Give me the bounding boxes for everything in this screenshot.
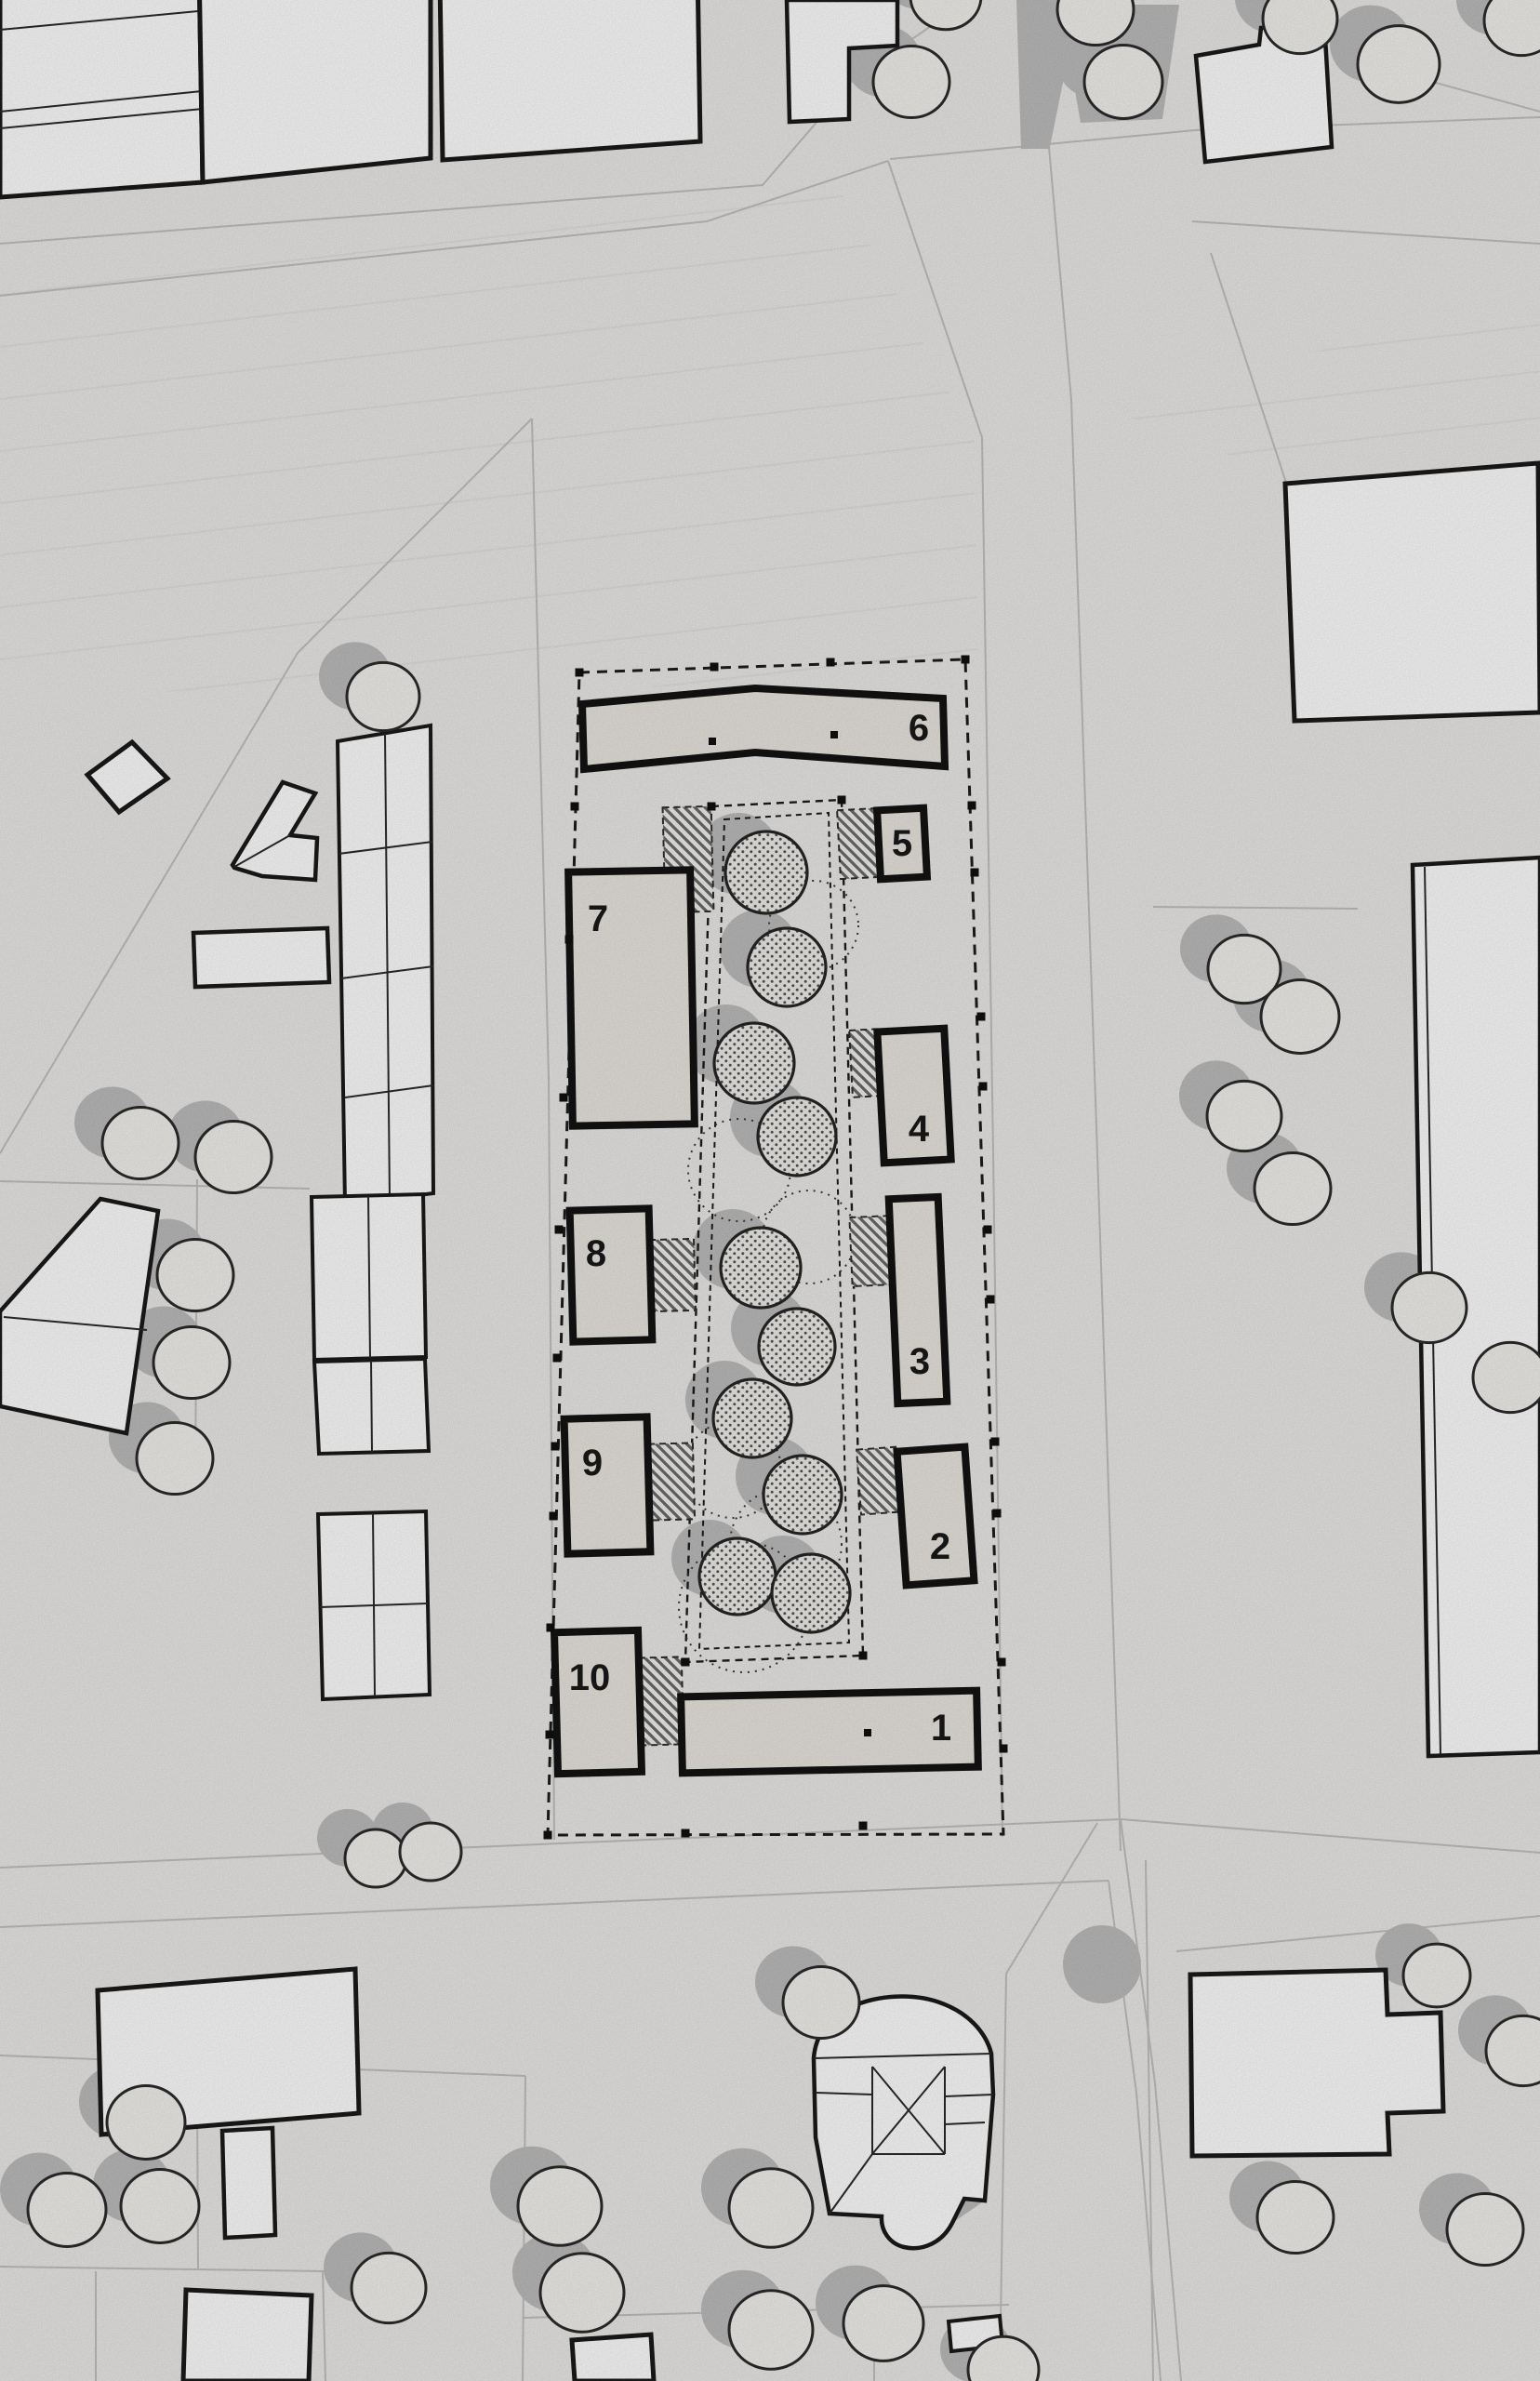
site-plan: 65748392101 [0,0,1540,2381]
site-plan-svg: 65748392101 [0,0,1540,2381]
noise-overlay [0,0,1540,2381]
